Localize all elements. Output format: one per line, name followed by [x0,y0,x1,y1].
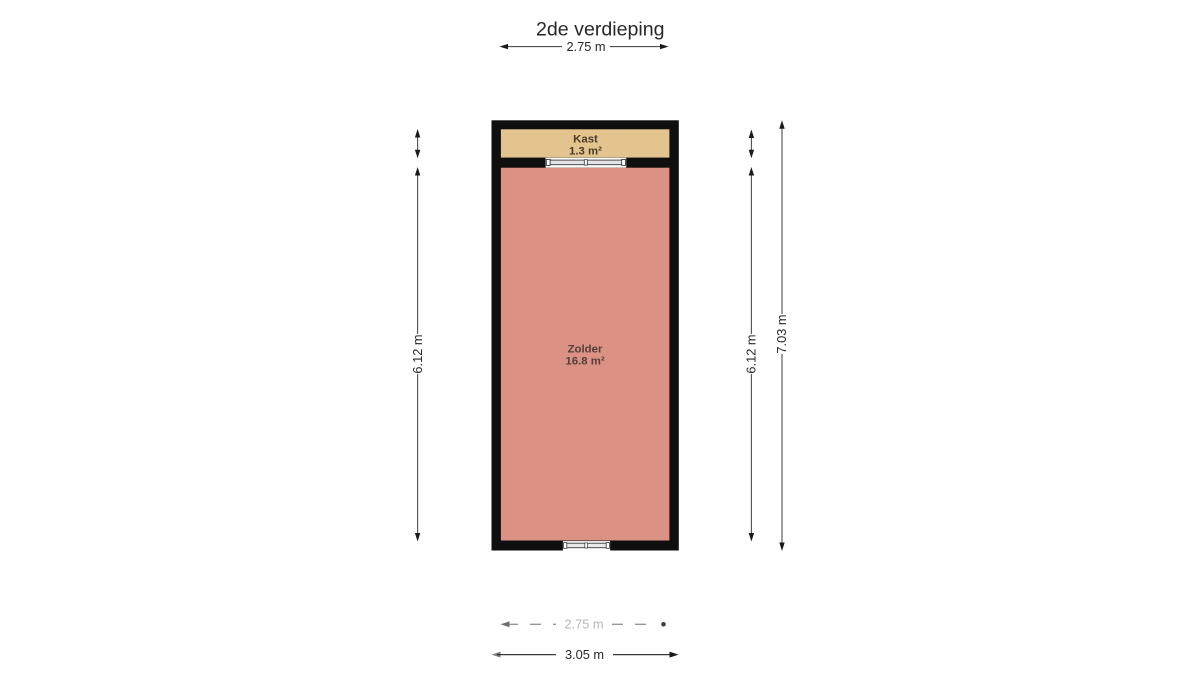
svg-text:7.03 m: 7.03 m [774,314,789,353]
svg-text:2.75 m: 2.75 m [566,39,605,54]
svg-text:16.8 m²: 16.8 m² [565,356,604,368]
svg-text:Kast: Kast [573,134,598,146]
svg-text:6.12 m: 6.12 m [410,334,425,373]
svg-text:6.12 m: 6.12 m [744,334,759,373]
svg-text:1.3 m²: 1.3 m² [569,146,602,158]
svg-text:Zolder: Zolder [568,344,603,356]
svg-text:3.05 m: 3.05 m [565,647,604,662]
svg-text:2.75 m: 2.75 m [564,617,603,632]
svg-text:2de verdieping: 2de verdieping [536,19,665,41]
